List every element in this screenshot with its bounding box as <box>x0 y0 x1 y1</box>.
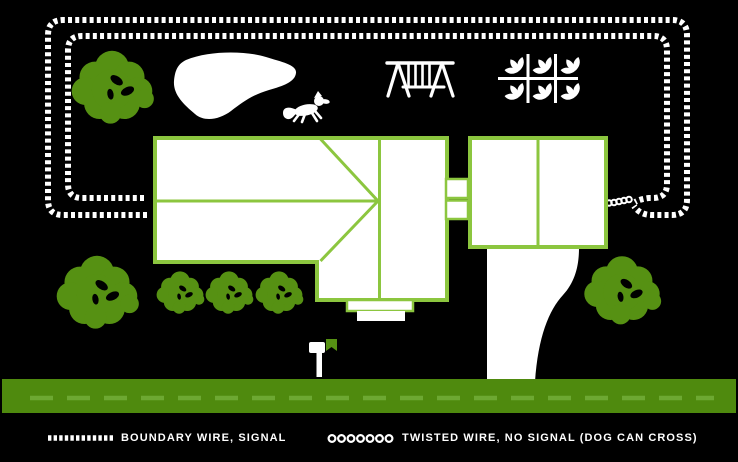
garden-icon <box>498 54 583 103</box>
pond <box>174 52 296 119</box>
porch-step-2 <box>357 311 405 321</box>
legend-boundary-wire: BOUNDARY WIRE, SIGNAL <box>47 431 287 445</box>
bush-3 <box>256 271 304 313</box>
driveway <box>487 248 579 382</box>
tree-bottom-left <box>57 256 139 329</box>
mailbox-flag <box>326 339 337 351</box>
street <box>2 379 736 413</box>
mailbox-icon <box>309 339 337 377</box>
breezeway <box>446 179 468 219</box>
garage <box>470 138 606 247</box>
bush-1 <box>157 271 205 313</box>
tree-top-left <box>72 51 154 124</box>
tree-bottom-right <box>584 256 661 324</box>
dog-icon <box>283 91 330 122</box>
twisted-wire-sample-icon <box>327 433 395 444</box>
boundary-wire-sample-icon <box>47 433 114 443</box>
yard-wiring-diagram: BOUNDARY WIRE, SIGNAL TWISTED WIRE, NO S… <box>0 0 738 462</box>
legend: BOUNDARY WIRE, SIGNAL TWISTED WIRE, NO S… <box>0 428 738 452</box>
legend-twisted-wire: TWISTED WIRE, NO SIGNAL (DOG CAN CROSS) <box>327 431 698 445</box>
yard-scene <box>0 0 738 462</box>
bush-2 <box>206 271 254 313</box>
legend-boundary-label: BOUNDARY WIRE, SIGNAL <box>121 431 287 445</box>
legend-twisted-label: TWISTED WIRE, NO SIGNAL (DOG CAN CROSS) <box>402 431 698 445</box>
twisted-wire <box>606 197 632 206</box>
porch-step-1 <box>347 300 413 311</box>
swing-set-icon <box>387 63 453 96</box>
